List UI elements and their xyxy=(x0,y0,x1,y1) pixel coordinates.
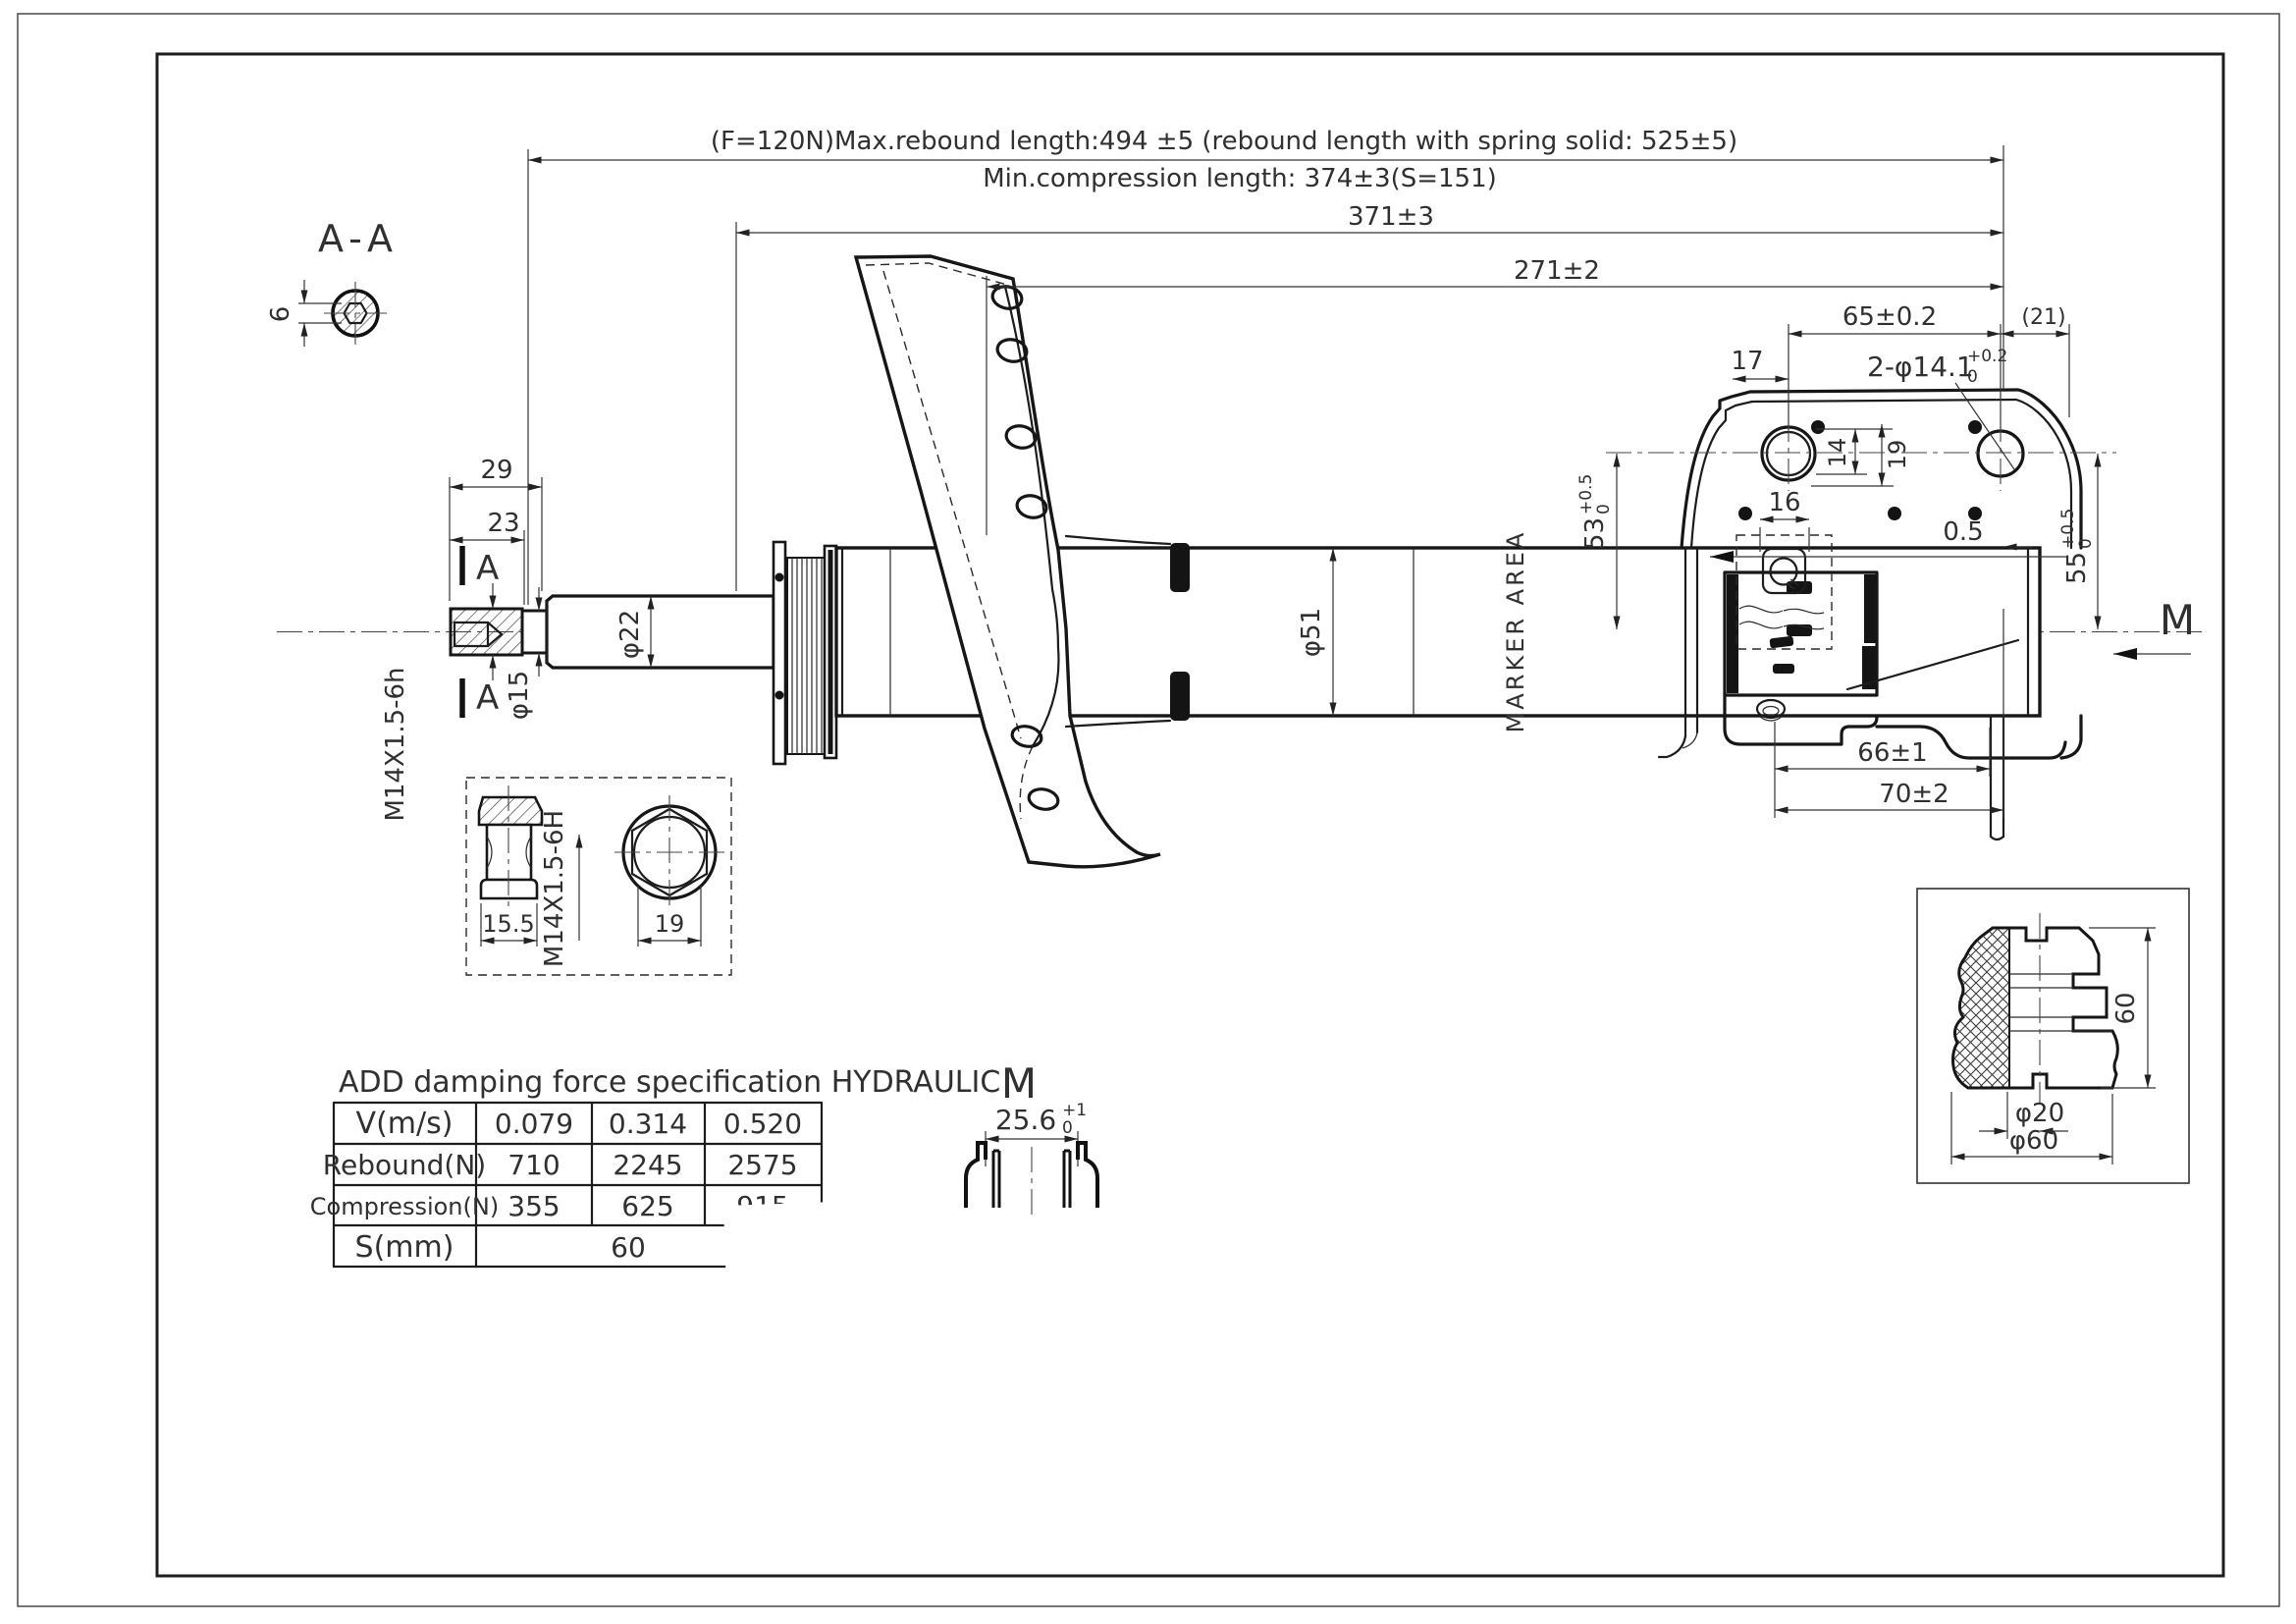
table-cell: 0.520 xyxy=(723,1108,802,1140)
table-cell: Compression(N) xyxy=(310,1193,499,1220)
rod-thread-label: M14X1.5-6h xyxy=(381,667,410,821)
tube-dia-label: φ51 xyxy=(1297,608,1326,657)
dim-overall-a: 371±3 xyxy=(1348,202,1434,232)
dim-center-a: 53 xyxy=(1580,517,1610,550)
dim-holes-tol-up: +0.2 xyxy=(1967,347,2007,366)
damping-table-title: ADD damping force specification HYDRAULI… xyxy=(339,1065,1000,1100)
dim-bumper-od: φ60 xyxy=(2009,1126,2058,1156)
view-m-tol-dn: 0 xyxy=(1062,1118,1073,1138)
damping-table: ADD damping force specification HYDRAULI… xyxy=(310,1065,1001,1309)
note-rebound: (F=120N)Max.rebound length:494 ±5 (rebou… xyxy=(711,127,1737,156)
section-mark-top: A xyxy=(476,549,499,588)
table-cell: S(mm) xyxy=(355,1230,454,1265)
dim-foot-a: 66±1 xyxy=(1857,738,1927,768)
dim-bumper-height: 60 xyxy=(2111,992,2141,1024)
piston-rod xyxy=(451,546,774,718)
table-cell: Rebound(N) xyxy=(323,1149,486,1181)
section-aa-title: A-A xyxy=(318,217,399,260)
section-mark-bottom: A xyxy=(476,678,499,718)
table-cell: 2245 xyxy=(613,1149,682,1181)
view-m-tol-up: +1 xyxy=(1062,1101,1087,1120)
table-cell: V(m/s) xyxy=(356,1107,454,1141)
view-m-dim: 25.6 xyxy=(995,1104,1056,1136)
dim-rod-a: 29 xyxy=(480,456,512,485)
table-cell: 710 xyxy=(507,1149,560,1181)
section-aa-detail: A-A 6 xyxy=(266,217,399,347)
note-compression: Min.compression length: 374±3(S=151) xyxy=(983,164,1497,193)
dim-foot-b: 70±2 xyxy=(1879,780,1949,809)
rod-dia-label: φ22 xyxy=(615,610,645,659)
dim-center-a-tol-dn: 0 xyxy=(1594,504,1614,514)
dim-hole-a: 14 xyxy=(1824,438,1851,468)
dim-edge-offset: 17 xyxy=(1731,347,1763,376)
dust-boot xyxy=(774,542,836,764)
dim-center-b-tol-up: +0.5 xyxy=(2058,509,2078,549)
drawing-sheet: M MARKER AREA φ51 φ22 φ15 M14X1.5-6h (F=… xyxy=(0,0,2296,1624)
dim-center-b-tol-dn: 0 xyxy=(2076,538,2096,549)
table-cell: 0.314 xyxy=(609,1108,687,1140)
dim-center-a-tol-up: +0.5 xyxy=(1576,474,1596,514)
table-cell: 2575 xyxy=(727,1149,797,1181)
table-cell: 0.079 xyxy=(495,1108,573,1140)
table-cell: 625 xyxy=(621,1190,673,1222)
dim-bracket-span: 65±0.2 xyxy=(1842,302,1937,332)
dim-nut-flange: 15.5 xyxy=(482,910,534,938)
dim-holes: 2-φ14.1 xyxy=(1867,351,1974,383)
dim-gap: 0.5 xyxy=(1943,517,1983,547)
table-cell: 355 xyxy=(507,1190,560,1222)
dim-holes-tol-dn: 0 xyxy=(1967,367,1978,387)
dim-nut-plate: 16 xyxy=(1768,488,1800,517)
nut-detail: 15.5 M14X1.5-6H 19 xyxy=(466,778,731,975)
dim-bracket-ref: (21) xyxy=(2021,305,2065,330)
rod-neck-label: φ15 xyxy=(505,671,534,720)
dim-hex-af: 6 xyxy=(266,306,295,323)
dim-nut-thread: M14X1.5-6H xyxy=(540,810,569,967)
dim-hole-b: 19 xyxy=(1884,440,1911,470)
bump-stop-detail: 60 φ20 φ60 xyxy=(1917,889,2189,1183)
dim-center-b: 55 xyxy=(2062,552,2092,584)
marker-area-label: MARKER AREA xyxy=(1502,530,1529,733)
dim-nut-af: 19 xyxy=(655,910,685,938)
table-clip-patch xyxy=(723,1200,899,1309)
view-m-title: M xyxy=(1001,1059,1037,1108)
dim-rod-b: 23 xyxy=(487,509,519,538)
main-view: M MARKER AREA φ51 φ22 φ15 M14X1.5-6h xyxy=(277,256,2207,867)
dim-overall-b: 271±2 xyxy=(1514,256,1600,286)
view-m-arrow-label: M xyxy=(2160,596,2195,644)
dim-bumper-bore: φ20 xyxy=(2015,1099,2064,1128)
table-cell: 60 xyxy=(611,1231,646,1264)
